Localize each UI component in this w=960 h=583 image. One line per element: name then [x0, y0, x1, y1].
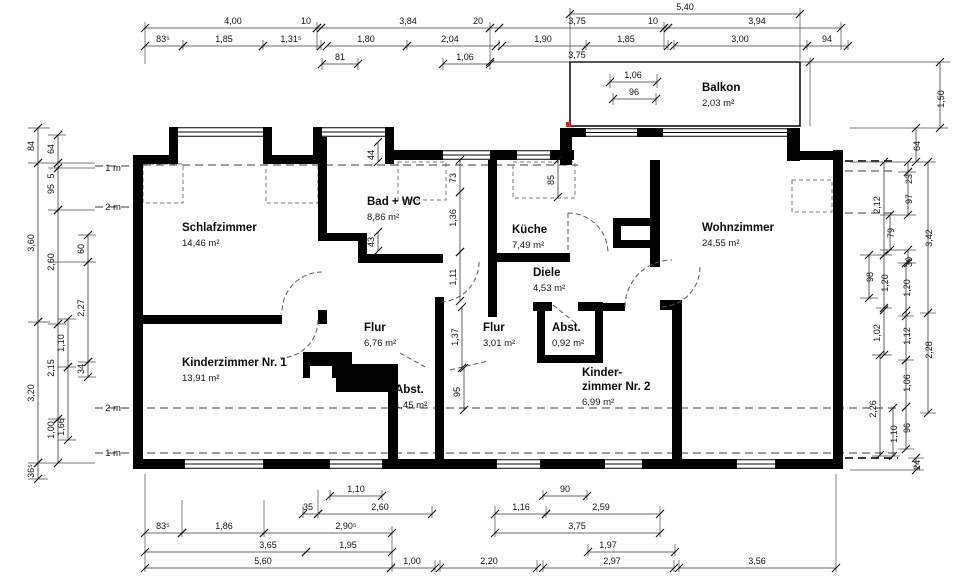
dimension-label: 1,50: [936, 90, 946, 108]
dimension-label: 10: [648, 16, 658, 26]
room-area: 24,55 m²: [702, 238, 740, 249]
room-name: Diele: [533, 267, 561, 279]
dimension-label: 1,66: [56, 418, 66, 436]
dimension-label: 3,20: [26, 384, 36, 402]
dimension-label: 1,10: [347, 484, 365, 494]
room-name: Bad + WC: [367, 196, 421, 208]
room-area: 8,86 m²: [367, 212, 399, 223]
dimension-label: 85: [546, 175, 556, 185]
dimension-label: 36⁵: [26, 464, 36, 478]
room-name: Wohnzimmer: [702, 222, 775, 234]
dimension-label: 20: [473, 16, 483, 26]
wall: [490, 150, 517, 160]
room-name: Kinder-: [582, 367, 622, 379]
dimension-label: 3,84: [399, 16, 417, 26]
wall: [595, 302, 603, 363]
dimension-label: 24: [912, 460, 922, 470]
wall: [435, 297, 444, 459]
dimension-label: 1,31⁵: [280, 34, 302, 44]
door-slant-abst1: [400, 353, 427, 368]
wall: [385, 150, 443, 160]
room-name: Schlafzimmer: [182, 222, 257, 234]
dimension-label: 1,10: [56, 334, 66, 352]
height-label: 2 m: [105, 202, 121, 213]
dimension-label: 2,26: [868, 400, 878, 418]
wall: [537, 302, 545, 363]
dimension-label: 4,00: [224, 16, 242, 26]
red-mark: [566, 122, 571, 127]
dimension-label: 2,60: [371, 502, 389, 512]
dimension-label: 1,85: [215, 34, 233, 44]
dimension-label: 23: [904, 174, 914, 184]
dimension-label: 35: [303, 502, 313, 512]
dimension-label: 1,36: [448, 209, 458, 227]
wall: [560, 128, 572, 165]
dimension-label: 1,00: [403, 556, 421, 566]
height-label: 1 m: [105, 448, 121, 459]
room-name: zimmer Nr. 2: [582, 381, 650, 393]
dimension-label: 1,20: [902, 279, 912, 297]
dimension-label: 10: [301, 16, 311, 26]
dimension-label: 1,85: [617, 34, 635, 44]
dimension-label: 83⁵: [156, 34, 170, 44]
dimension-label: 84: [26, 141, 36, 151]
dimension-label: 73: [448, 173, 458, 183]
dimension-label: 2,60: [46, 253, 56, 271]
niche: [513, 162, 575, 198]
dimension-label: 2,15: [46, 359, 56, 377]
door-arc-kinderzimmer2: [625, 260, 672, 307]
room-name: Küche: [512, 224, 547, 236]
dimension-label: 94: [822, 34, 832, 44]
height-label: 1 m: [105, 163, 121, 174]
wall: [613, 218, 621, 248]
room-area: 4,53 m²: [533, 283, 565, 294]
dimension-label: 3,65: [259, 540, 277, 550]
dimension-label: 95: [46, 184, 56, 194]
room-area: 0,92 m²: [552, 338, 584, 349]
dimension-label: 3,94: [748, 16, 766, 26]
niche: [143, 164, 183, 203]
dimension-label: 3,75: [568, 50, 586, 60]
wall: [650, 160, 660, 267]
window-layer: [178, 127, 787, 469]
dimension-label: 95: [452, 387, 462, 397]
dimension-label: 96: [902, 423, 912, 433]
wall: [637, 128, 663, 137]
room-area: 2,03 m²: [702, 98, 734, 109]
wall: [672, 310, 682, 459]
room-area: 1,45 m²: [395, 400, 427, 411]
dimension-label: 1,10: [889, 425, 899, 443]
room-name: Flur: [483, 322, 505, 334]
wall: [488, 160, 497, 317]
dimension-label: 1,90: [534, 34, 552, 44]
wall: [133, 315, 282, 324]
dimension-label: 1,12: [902, 327, 912, 345]
dimension-label: 1,16: [512, 502, 530, 512]
dimension-label: 2,59: [592, 502, 610, 512]
dimension-label: 5,60: [254, 556, 272, 566]
height-label: 2 m: [105, 403, 121, 414]
dimension-label: 81: [335, 52, 345, 62]
dimension-label: 1,06: [624, 70, 642, 80]
dimension-label: 30: [904, 257, 914, 267]
dimension-label: 1,20: [880, 274, 890, 292]
dimension-label: 1,02: [872, 324, 882, 342]
wall: [318, 310, 327, 324]
dimension-label: 2,97: [603, 556, 621, 566]
dimension-label: 98: [865, 272, 875, 282]
wall: [572, 128, 586, 137]
dimension-label: 1,37: [450, 328, 460, 346]
dimension-label: 3,60: [26, 234, 36, 252]
dimension-label: 90: [560, 484, 570, 494]
dimension-label: 1,06: [456, 52, 474, 62]
dimension-label: 2,27: [76, 299, 86, 317]
room-area: 7,49 m²: [512, 240, 544, 251]
wall: [358, 254, 443, 263]
wall: [603, 303, 625, 311]
door-arc-schlafzimmer: [282, 272, 322, 312]
dimension-label: 97: [904, 194, 914, 204]
wall: [318, 233, 367, 241]
wall: [537, 355, 603, 363]
balcony-outline: [570, 62, 800, 126]
dimension-label: 1,11: [448, 269, 458, 286]
room-area: 3,01 m²: [483, 338, 515, 349]
door-arc-bad: [439, 262, 479, 302]
wall-notch: [310, 366, 332, 378]
dimension-label: 3,75: [568, 16, 586, 26]
niche: [792, 180, 832, 212]
room-name: Balkon: [702, 82, 740, 94]
dimension-label: 96: [629, 87, 639, 97]
room-area: 6,99 m²: [582, 397, 614, 408]
dimension-label: 79: [886, 228, 896, 238]
room-name: Abst.: [395, 384, 424, 396]
room-area: 6,76 m²: [364, 338, 396, 349]
wall: [169, 127, 178, 164]
wall: [787, 128, 800, 161]
dimension-label: 83⁵: [156, 521, 170, 531]
wall: [488, 253, 570, 262]
door-slant-flur: [450, 361, 488, 370]
dimension-label: 2,12: [872, 196, 882, 214]
room-name: Abst.: [552, 322, 581, 334]
niche: [266, 162, 318, 203]
wall: [133, 155, 143, 468]
dimension-label: 2,28: [924, 341, 934, 359]
dimension-label: 1,95: [339, 540, 357, 550]
wall-layer: [133, 127, 843, 469]
dimension-label: 3,42: [924, 229, 934, 247]
door-arc-kueche: [568, 213, 608, 253]
height-label-layer: 1 m2 m2 m1 m: [105, 163, 121, 459]
dimension-label: 60: [76, 244, 86, 254]
dimension-label: 1,86: [215, 521, 233, 531]
dimension-label: 44: [366, 150, 376, 160]
dimension-label: 1,06: [902, 374, 912, 392]
wall: [800, 151, 843, 160]
dimension-label: 2,04: [441, 34, 459, 44]
wall: [833, 150, 843, 468]
dimension-label: 34: [76, 364, 86, 374]
dimension-label: 64: [912, 141, 922, 151]
dimension-label: 1,80: [357, 34, 375, 44]
dimension-label: 64: [46, 144, 56, 154]
dimension-label: 2,90⁵: [335, 521, 357, 531]
dimension-label: 1,00: [46, 421, 56, 439]
dimension-label: 3,56: [748, 556, 766, 566]
room-name: Flur: [364, 322, 386, 334]
dimension-layer: 5,404,00103,84203,75103,9483⁵1,851,31⁵1,…: [26, 2, 946, 572]
room-name: Kinderzimmer Nr. 1: [182, 357, 287, 369]
niche: [398, 162, 446, 200]
dimension-label: 2,20: [480, 556, 498, 566]
room-area: 13,91 m²: [182, 373, 220, 384]
floor-plan-drawing: 5,404,00103,84203,75103,9483⁵1,851,31⁵1,…: [0, 0, 960, 583]
wall: [318, 136, 327, 233]
dimension-label: 43: [366, 237, 376, 247]
dimension-label: 5,40: [676, 2, 694, 12]
dimension-label: 5: [46, 173, 56, 178]
window-niches: [143, 162, 832, 212]
wall: [263, 127, 272, 164]
dimension-label: 3,00: [731, 34, 749, 44]
dimension-label: 3,75: [568, 521, 586, 531]
room-area: 14,46 m²: [182, 238, 220, 249]
dimension-label: 1,97: [599, 540, 617, 550]
